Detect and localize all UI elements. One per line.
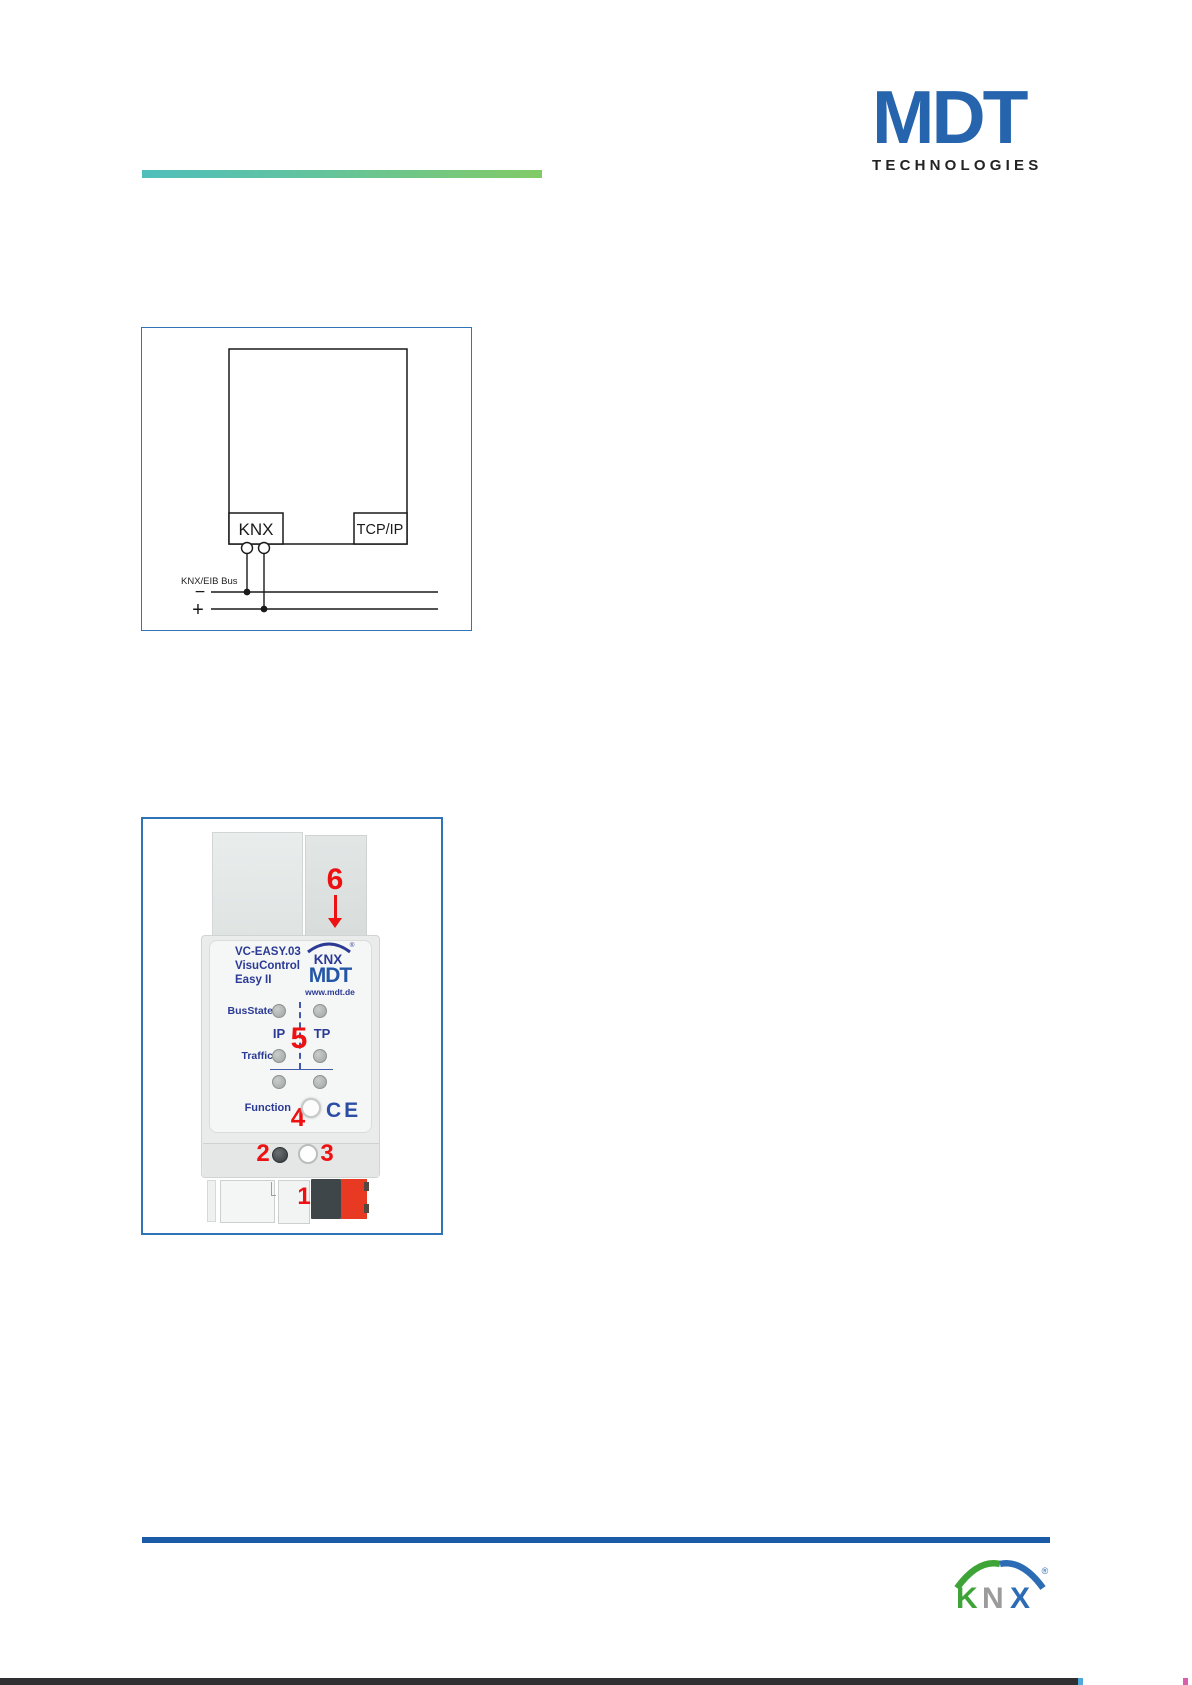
plus-symbol: + <box>192 599 204 621</box>
led-traffic-ip <box>272 1049 286 1063</box>
led-row3-ip <box>272 1075 286 1089</box>
callout-3: 3 <box>317 1140 337 1168</box>
function-button <box>301 1098 321 1118</box>
knx-logo-letter-x: X <box>1010 1582 1030 1612</box>
bus-terminal-dark <box>311 1179 341 1219</box>
mdt-logo-subtext: TECHNOLOGIES <box>872 157 1062 174</box>
mdt-badge: MDT <box>289 964 371 988</box>
junction-dot-minus <box>244 589 251 596</box>
mdt-logo-text: MDT <box>872 84 1062 150</box>
programming-led <box>298 1144 318 1164</box>
header-gradient-bar <box>142 170 542 178</box>
led-busstate-tp <box>313 1004 327 1018</box>
terminal-block-white-left <box>220 1180 275 1223</box>
ce-mark: CE <box>326 1099 361 1123</box>
terminal-circle-minus <box>242 543 253 554</box>
schematic-drawing: KNX TCP/IP − + KNX/EIB Bus <box>142 328 471 630</box>
column-label-ip: IP <box>268 1026 290 1041</box>
mdt-logo: MDT TECHNOLOGIES <box>872 84 1062 174</box>
knx-badge-registered: ® <box>350 941 355 949</box>
terminal-circle-plus <box>259 543 270 554</box>
footer-divider-line <box>142 1537 1050 1543</box>
led-label-traffic: Traffic <box>203 1050 273 1062</box>
knx-logo: K N X ® <box>950 1556 1052 1617</box>
document-page: MDT TECHNOLOGIES KNX TCP/IP − + KNX/EIB … <box>0 0 1192 1685</box>
junction-dot-plus <box>261 606 268 613</box>
callout-5: 5 <box>289 1022 309 1056</box>
print-mark-pink <box>1183 1678 1188 1685</box>
led-busstate-ip <box>272 1004 286 1018</box>
function-label: Function <box>221 1102 291 1114</box>
figure-connection-schematic: KNX TCP/IP − + KNX/EIB Bus <box>141 327 472 631</box>
bus-label: KNX/EIB Bus <box>181 576 238 587</box>
bus-terminal-red-notch-top <box>364 1182 369 1191</box>
column-label-tp: TP <box>311 1026 333 1041</box>
callout-6: 6 <box>324 863 346 897</box>
led-traffic-tp <box>313 1049 327 1063</box>
terminal-block-notch <box>271 1182 276 1196</box>
callout-6-arrow-head <box>328 918 342 928</box>
device-website: www.mdt.de <box>289 987 371 997</box>
tcpip-port-label: TCP/IP <box>357 522 404 538</box>
led-label-busstate: BusState <box>203 1005 273 1017</box>
knx-logo-letter-n: N <box>982 1582 1004 1612</box>
din-clip-left <box>212 832 303 936</box>
device-lower-section <box>203 1143 379 1177</box>
print-mark-blue <box>1078 1678 1083 1685</box>
callout-6-arrow-line <box>334 895 337 919</box>
knx-logo-registered: ® <box>1042 1566 1049 1576</box>
figure-device-photo: 6 VC-EASY.03 VisuControl Easy II KNX ® M… <box>141 817 443 1235</box>
led-row3-tp <box>313 1075 327 1089</box>
programming-button <box>272 1147 288 1163</box>
callout-2: 2 <box>253 1140 273 1168</box>
bus-terminal-red-notch-bottom <box>364 1204 369 1213</box>
terminal-strip-left <box>207 1180 216 1222</box>
led-section-underline <box>270 1069 333 1070</box>
device-model: VC-EASY.03 <box>235 945 301 959</box>
knx-logo-letter-k: K <box>956 1582 978 1612</box>
knx-badge-arc <box>308 944 350 952</box>
knx-port-label: KNX <box>239 520 274 539</box>
callout-1: 1 <box>294 1183 314 1211</box>
page-bottom-scan-bar <box>0 1678 1078 1685</box>
